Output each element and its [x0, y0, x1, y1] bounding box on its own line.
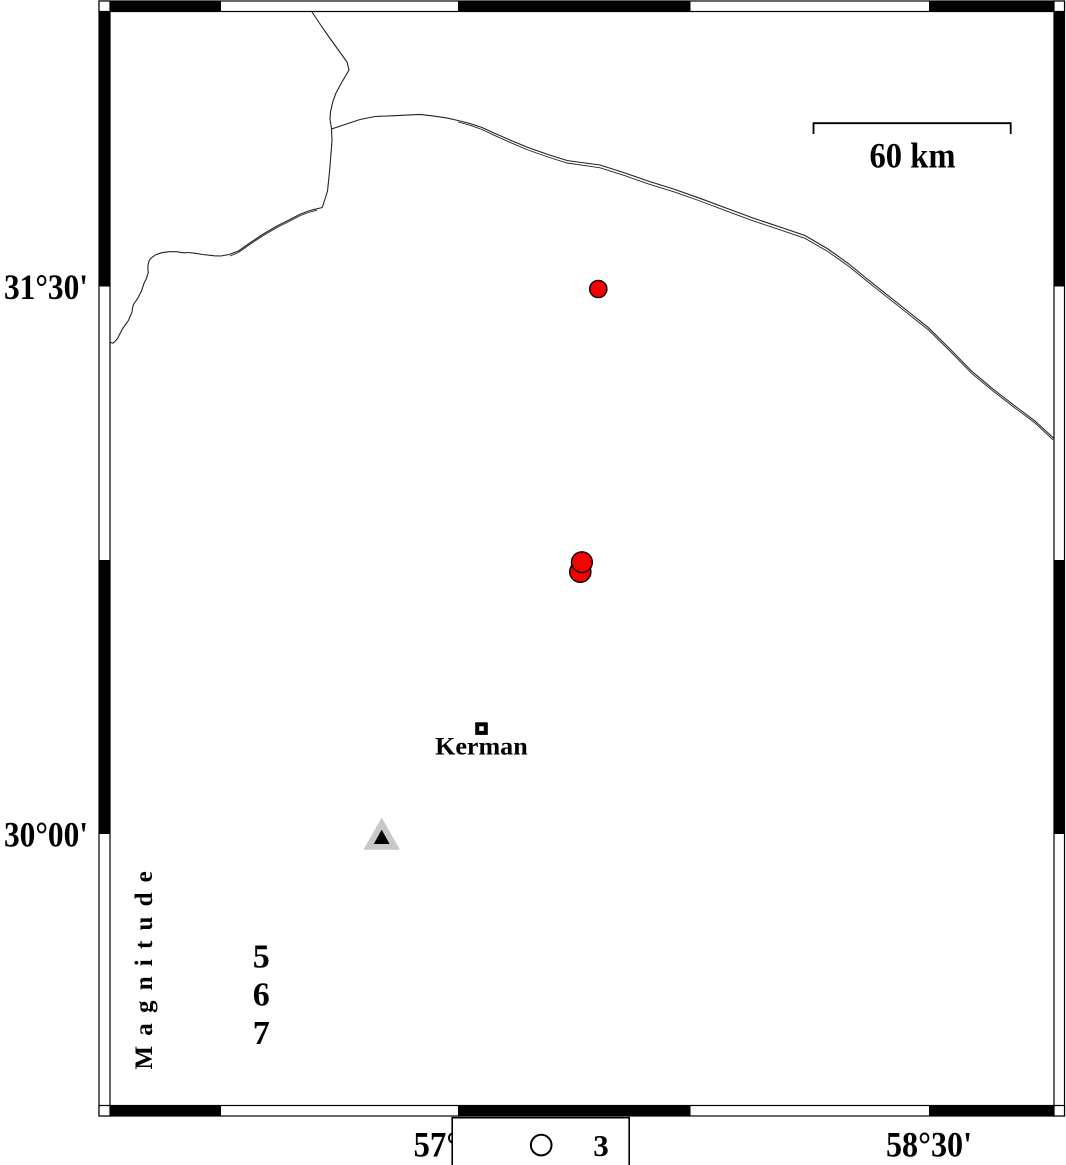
svg-text:3: 3 — [593, 1128, 609, 1163]
svg-text:7: 7 — [253, 1015, 270, 1052]
svg-text:30°00': 30°00' — [4, 815, 88, 855]
svg-text:60 km: 60 km — [870, 135, 956, 175]
svg-text:6: 6 — [253, 977, 270, 1014]
svg-text:58°30': 58°30' — [886, 1124, 972, 1164]
svg-text:Kerman: Kerman — [435, 734, 528, 761]
svg-text:Magnitude: Magnitude — [131, 861, 158, 1069]
svg-text:5: 5 — [253, 939, 270, 976]
svg-text:31°30': 31°30' — [4, 267, 88, 307]
